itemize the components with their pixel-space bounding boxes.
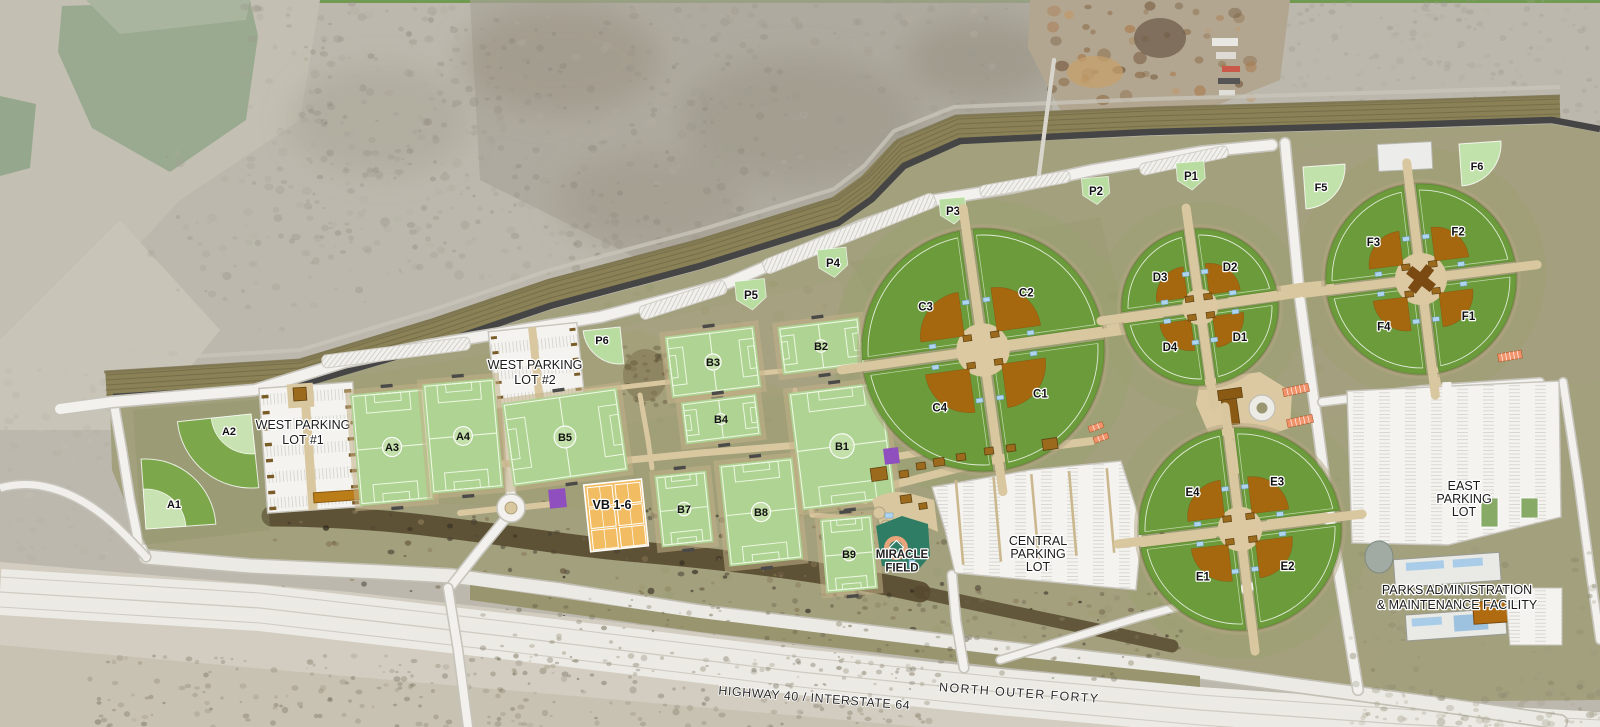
svg-text:LOT #2: LOT #2: [514, 373, 556, 387]
svg-text:P6: P6: [595, 335, 608, 347]
svg-text:F2: F2: [1451, 226, 1464, 238]
svg-text:B2: B2: [814, 341, 828, 353]
svg-text:B3: B3: [706, 357, 720, 369]
svg-text:D4: D4: [1163, 342, 1178, 354]
svg-text:LOT: LOT: [1452, 505, 1477, 519]
svg-text:WEST PARKING: WEST PARKING: [488, 358, 583, 372]
svg-text:A3: A3: [385, 442, 399, 454]
svg-text:E3: E3: [1270, 476, 1284, 488]
svg-text:LOT: LOT: [1026, 560, 1051, 574]
svg-text:F1: F1: [1462, 311, 1476, 323]
svg-text:VB 1-6: VB 1-6: [593, 498, 632, 512]
svg-text:C3: C3: [918, 302, 933, 314]
svg-text:F4: F4: [1377, 322, 1391, 334]
svg-text:EAST: EAST: [1448, 479, 1481, 493]
svg-text:B4: B4: [714, 414, 729, 426]
svg-text:F5: F5: [1315, 182, 1328, 194]
svg-text:P2: P2: [1089, 186, 1103, 198]
svg-text:PARKING: PARKING: [1436, 492, 1491, 506]
svg-text:C1: C1: [1033, 388, 1048, 400]
svg-text:D2: D2: [1223, 262, 1238, 274]
svg-text:P5: P5: [744, 290, 759, 302]
svg-text:B5: B5: [558, 432, 572, 444]
svg-text:D3: D3: [1153, 272, 1168, 284]
svg-text:B9: B9: [842, 549, 856, 561]
svg-text:LOT #1: LOT #1: [282, 433, 324, 447]
svg-text:PARKS ADMINISTRATION: PARKS ADMINISTRATION: [1382, 583, 1532, 597]
svg-text:D1: D1: [1233, 332, 1248, 344]
svg-text:B1: B1: [835, 441, 849, 453]
svg-text:A2: A2: [222, 426, 236, 438]
svg-text:FIELD: FIELD: [885, 563, 918, 575]
svg-text:C4: C4: [932, 402, 947, 414]
svg-text:E4: E4: [1185, 487, 1200, 499]
svg-text:A4: A4: [456, 431, 471, 443]
svg-text:C2: C2: [1019, 288, 1034, 300]
svg-text:MIRACLE: MIRACLE: [876, 549, 929, 561]
svg-text:B8: B8: [754, 507, 768, 519]
svg-text:B7: B7: [677, 504, 691, 516]
svg-text:P3: P3: [946, 206, 960, 218]
svg-text:WEST PARKING: WEST PARKING: [256, 418, 351, 432]
svg-text:A1: A1: [167, 499, 181, 511]
svg-text:P4: P4: [826, 258, 841, 270]
svg-text:P1: P1: [1184, 171, 1199, 183]
svg-text:CENTRAL: CENTRAL: [1009, 534, 1067, 548]
svg-text:F3: F3: [1367, 237, 1380, 249]
svg-text:& MAINTENANCE FACILITY: & MAINTENANCE FACILITY: [1377, 598, 1538, 612]
svg-text:E1: E1: [1196, 572, 1211, 584]
svg-text:PARKING: PARKING: [1010, 547, 1065, 561]
svg-text:E2: E2: [1280, 561, 1294, 573]
svg-text:F6: F6: [1471, 161, 1484, 173]
